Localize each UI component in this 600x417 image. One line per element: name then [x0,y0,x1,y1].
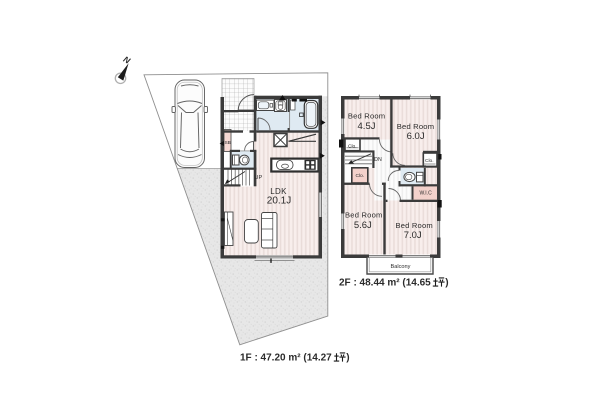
svg-text:DN: DN [374,157,382,163]
svg-text:): ) [346,353,349,364]
svg-text:5.6J: 5.6J [354,220,372,231]
svg-text:W.I.C: W.I.C [419,191,432,197]
svg-text:Bed Room: Bed Room [397,122,434,131]
svg-text:20.1J: 20.1J [267,196,291,207]
svg-text:N: N [122,54,133,66]
svg-text:1F : 47.20 m² (14.27: 1F : 47.20 m² (14.27 [240,353,332,364]
svg-text:4.5J: 4.5J [358,121,376,132]
svg-text:Clo.: Clo. [348,143,357,149]
svg-text:Bed Room: Bed Room [345,211,382,220]
svg-text:2F : 48.44 m² (14.65: 2F : 48.44 m² (14.65 [339,278,431,289]
svg-text:Bed Room: Bed Room [348,111,385,120]
svg-text:7.0J: 7.0J [404,230,422,241]
svg-text:Clo.: Clo. [355,173,364,179]
svg-text:UP: UP [254,175,262,181]
svg-text:): ) [445,278,448,289]
svg-text:Bed Room: Bed Room [395,221,432,230]
svg-text:Balcony: Balcony [391,264,411,270]
svg-text:Clo.: Clo. [425,158,434,164]
svg-text:6.0J: 6.0J [407,131,425,142]
svg-text:SB: SB [224,140,230,146]
